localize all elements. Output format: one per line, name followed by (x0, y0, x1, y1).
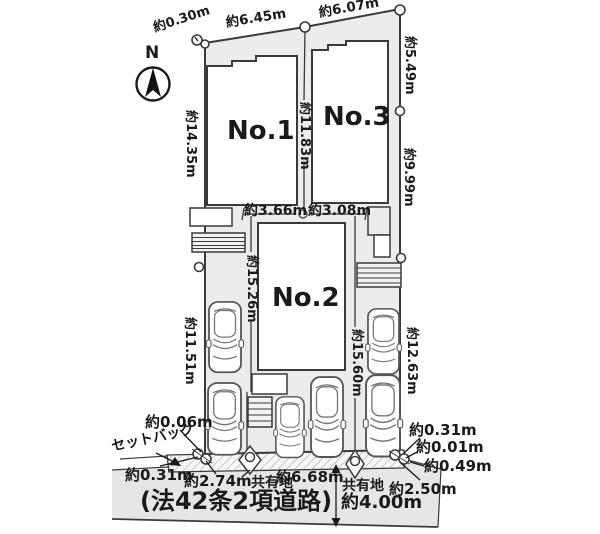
dim-depth-left: 約15.26m (244, 255, 258, 323)
north-label: N (145, 44, 159, 63)
dim-sw-offset-2: 約0.31m (125, 467, 193, 484)
dim-right-middle: 約9.99m (401, 148, 415, 207)
dim-right-lower: 約12.63m (404, 327, 418, 395)
site-plan: N 約0.30m 約6.45m 約6.07m 約5.49m 約9.99m 約12… (0, 0, 600, 534)
dim-left-lower: 約11.51m (182, 317, 196, 385)
site-plan-drawing (0, 0, 600, 534)
dim-mid-width-2: 約3.08m (308, 204, 371, 219)
north-compass-icon (137, 68, 170, 101)
dim-se-offset-1: 約0.31m (409, 422, 477, 439)
dim-road-width: 約4.00m (341, 493, 422, 513)
dim-front-center: 約6.68m (276, 469, 344, 486)
car-left-top (207, 302, 244, 372)
dim-mid-width-1: 約3.66m (244, 204, 307, 219)
car-right-bottom (363, 375, 402, 456)
road-name-label: (法42条2項道路) (140, 488, 332, 514)
car-right-top (366, 309, 402, 374)
building-label-no3: No.3 (323, 103, 391, 132)
building-label-no1: No.1 (227, 117, 295, 146)
dim-se-offset-2: 約0.01m (416, 439, 484, 456)
dim-left-upper: 約14.35m (183, 110, 197, 178)
dim-se-offset-3: 約0.49m (424, 458, 492, 475)
car-middle-van (309, 377, 346, 457)
dim-right-upper: 約5.49m (402, 36, 416, 95)
dim-center-divider: 約11.83m (297, 102, 311, 170)
building-label-no2: No.2 (272, 284, 340, 313)
dim-depth-right: 約15.60m (349, 329, 363, 397)
car-middle-small (274, 397, 307, 458)
